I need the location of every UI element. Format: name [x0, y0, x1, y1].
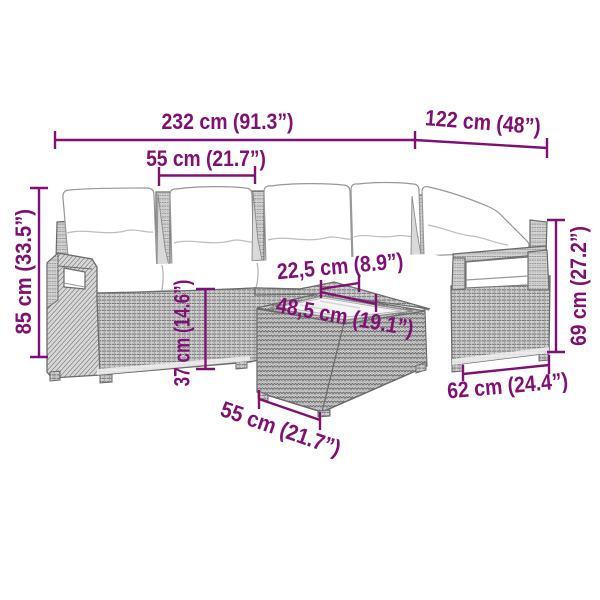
svg-text:122 cm (48”): 122 cm (48”) [424, 106, 541, 140]
svg-text:85 cm (33.5”): 85 cm (33.5”) [11, 209, 36, 334]
svg-text:69 cm (27.2”): 69 cm (27.2”) [567, 226, 592, 346]
svg-text:232 cm (91.3”): 232 cm (91.3”) [161, 110, 293, 135]
svg-text:37 cm (14.6”): 37 cm (14.6”) [171, 280, 196, 387]
svg-text:55 cm (21.7”): 55 cm (21.7”) [146, 147, 266, 172]
